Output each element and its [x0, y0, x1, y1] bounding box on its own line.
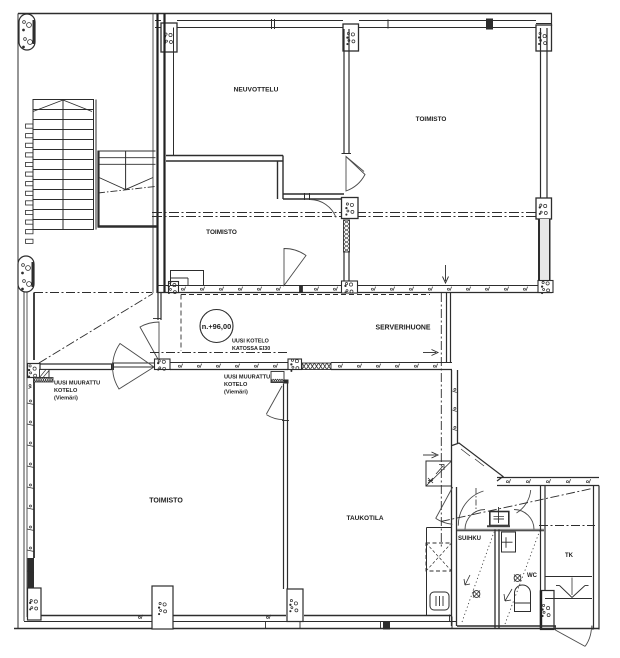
svg-text:KOTELO: KOTELO	[54, 388, 78, 394]
svg-text:TK: TK	[565, 553, 574, 559]
svg-text:TAUKOTILA: TAUKOTILA	[346, 515, 383, 522]
svg-text:UUSI MUURATTU: UUSI MUURATTU	[54, 381, 100, 387]
svg-text:KATOSSA EI30: KATOSSA EI30	[232, 346, 270, 352]
svg-text:TOIMISTO: TOIMISTO	[206, 229, 237, 236]
svg-text:n.+96,00: n.+96,00	[202, 322, 231, 331]
svg-text:SERVERIHUONE: SERVERIHUONE	[375, 325, 430, 332]
svg-text:(Viemäri): (Viemäri)	[54, 396, 78, 402]
svg-text:SUIHKU: SUIHKU	[458, 536, 481, 542]
svg-text:WC: WC	[527, 573, 538, 579]
svg-text:TOIMISTO: TOIMISTO	[416, 116, 447, 123]
svg-text:(Viemäri): (Viemäri)	[224, 390, 248, 396]
svg-text:TOIMISTO: TOIMISTO	[149, 498, 183, 505]
svg-text:UUSI MUURATTU: UUSI MUURATTU	[224, 375, 270, 381]
svg-text:NEUVOTTELU: NEUVOTTELU	[234, 87, 279, 94]
svg-text:UUSI KOTELO: UUSI KOTELO	[232, 339, 269, 345]
svg-text:KOTELO: KOTELO	[224, 382, 248, 388]
